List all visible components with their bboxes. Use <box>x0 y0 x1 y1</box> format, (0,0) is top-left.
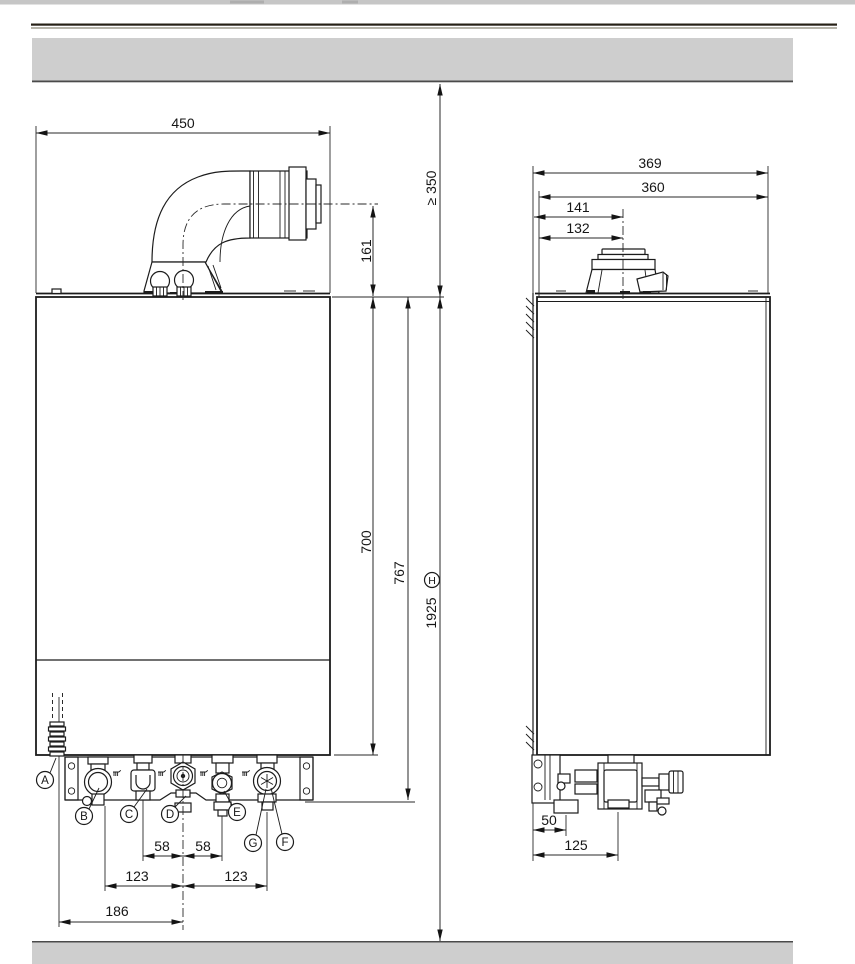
drain-offset-dim-label: 50 <box>541 812 557 828</box>
flue-elbow <box>144 167 378 300</box>
label-f: F <box>281 837 288 849</box>
manifold-plate-right <box>300 757 313 800</box>
manifold-plate-left <box>65 757 78 800</box>
manual-page: A B C D E G F 450 <box>0 0 855 964</box>
inner-right-dim-label: 58 <box>195 838 211 854</box>
fill-drain-icon <box>158 770 166 776</box>
flue-axis-dim-label: 132 <box>566 220 590 236</box>
clearance-dim-label: ≥ 350 <box>423 170 439 205</box>
pitch-right-dim-label: 123 <box>224 868 248 884</box>
boiler-front-body <box>36 297 330 755</box>
total-height-ref-label: H <box>428 575 436 587</box>
fill-drain-icon <box>242 770 250 776</box>
conn-height-dim-label: 767 <box>391 561 407 585</box>
body-height-dim-label: 700 <box>358 530 374 554</box>
fill-drain-icon <box>113 770 121 776</box>
page-header-remnant <box>0 0 855 5</box>
fill-drain-icon <box>200 770 208 776</box>
label-c: C <box>125 809 133 821</box>
ceiling-band <box>32 38 793 82</box>
valve-f <box>254 755 281 810</box>
pitch-left-dim-label: 123 <box>125 868 149 884</box>
label-e: E <box>233 807 241 819</box>
flue-adapter-side <box>586 209 668 299</box>
label-g: G <box>249 838 258 850</box>
wall-line <box>526 293 534 803</box>
label-a: A <box>41 775 49 787</box>
front-width-dim-label: 450 <box>171 115 195 131</box>
side-view: 369 360 141 132 50 125 <box>526 155 770 861</box>
valve-c <box>131 755 155 800</box>
front-view: A B C D E G F 450 <box>36 84 444 941</box>
flue-axis-outer-dim-label: 141 <box>566 199 590 215</box>
label-b: B <box>80 811 88 823</box>
total-height-dim-label: 1925 <box>423 597 439 628</box>
depth-body-dim-label: 360 <box>641 179 665 195</box>
boiler-side-body <box>537 297 770 755</box>
inner-left-dim-label: 58 <box>154 838 170 854</box>
floor-band <box>32 941 793 964</box>
dimension-drawing: A B C D E G F 450 <box>0 0 855 964</box>
condensate-hose <box>49 693 66 927</box>
flue-elbow-base <box>144 262 223 296</box>
label-d: D <box>166 809 174 821</box>
flue-height-dim-label: 161 <box>358 239 374 263</box>
side-piping <box>532 755 683 815</box>
offset-dim-label: 186 <box>105 903 129 919</box>
valve-offset-dim-label: 125 <box>564 837 588 853</box>
header-rule <box>31 24 837 29</box>
valve-b <box>83 757 112 806</box>
depth-total-dim-label: 369 <box>638 155 662 171</box>
